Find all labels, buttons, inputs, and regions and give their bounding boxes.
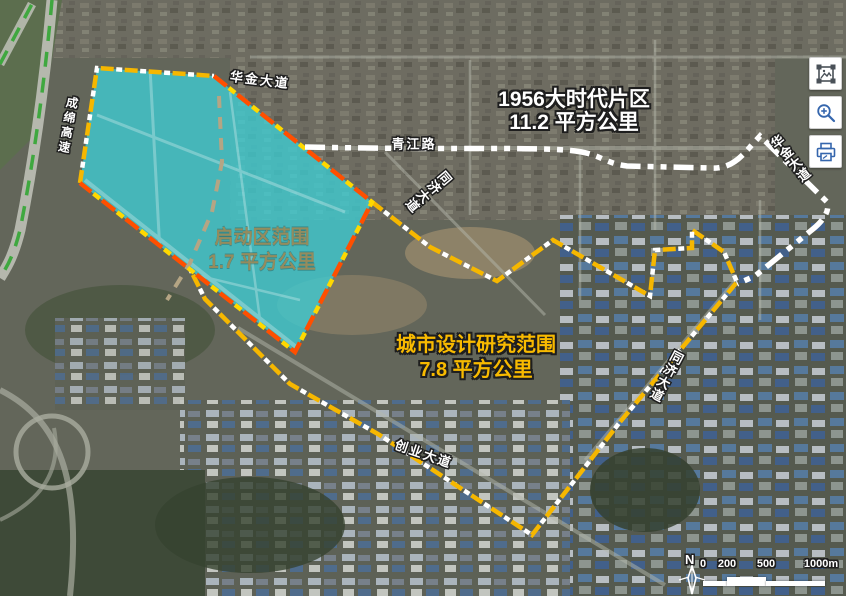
scale-tick-1000: 1000m xyxy=(804,558,838,570)
satellite-map[interactable] xyxy=(0,0,846,596)
research-scope-title: 城市设计研究范围 xyxy=(396,333,556,358)
map-viewport[interactable]: 1956大时代片区 11.2 平方公里 启动区范围 1.7 平方公里 城市设计研… xyxy=(0,0,846,596)
scale-segment-3 xyxy=(766,581,825,586)
map-toolbar xyxy=(809,57,842,168)
launch-area-title: 启动区范围 xyxy=(208,225,316,250)
scale-tick-200: 200 xyxy=(718,558,736,570)
district-1956-title: 1956大时代片区 xyxy=(498,88,650,111)
district-1956-label: 1956大时代片区 11.2 平方公里 xyxy=(498,88,650,134)
zoom-in-button[interactable] xyxy=(809,96,842,129)
export-image-button[interactable] xyxy=(809,57,842,90)
road-label-qingjiang: 青江路 xyxy=(391,134,436,153)
magnifier-plus-icon xyxy=(815,102,837,124)
printer-icon xyxy=(815,141,837,163)
research-scope-label: 城市设计研究范围 7.8 平方公里 xyxy=(396,333,556,383)
scale-segment-1 xyxy=(703,581,727,586)
scale-tick-0: 0 xyxy=(700,558,706,570)
scale-tick-500: 500 xyxy=(757,558,775,570)
scale-bar: N 0 200 500 1000m xyxy=(670,550,846,596)
launch-area-label: 启动区范围 1.7 平方公里 xyxy=(208,225,316,275)
research-scope-area: 7.8 平方公里 xyxy=(396,358,556,383)
district-1956-area: 11.2 平方公里 xyxy=(498,111,650,134)
launch-area-area: 1.7 平方公里 xyxy=(208,250,316,275)
scale-segment-2 xyxy=(727,577,766,586)
print-button[interactable] xyxy=(809,135,842,168)
image-frame-icon xyxy=(815,63,837,85)
